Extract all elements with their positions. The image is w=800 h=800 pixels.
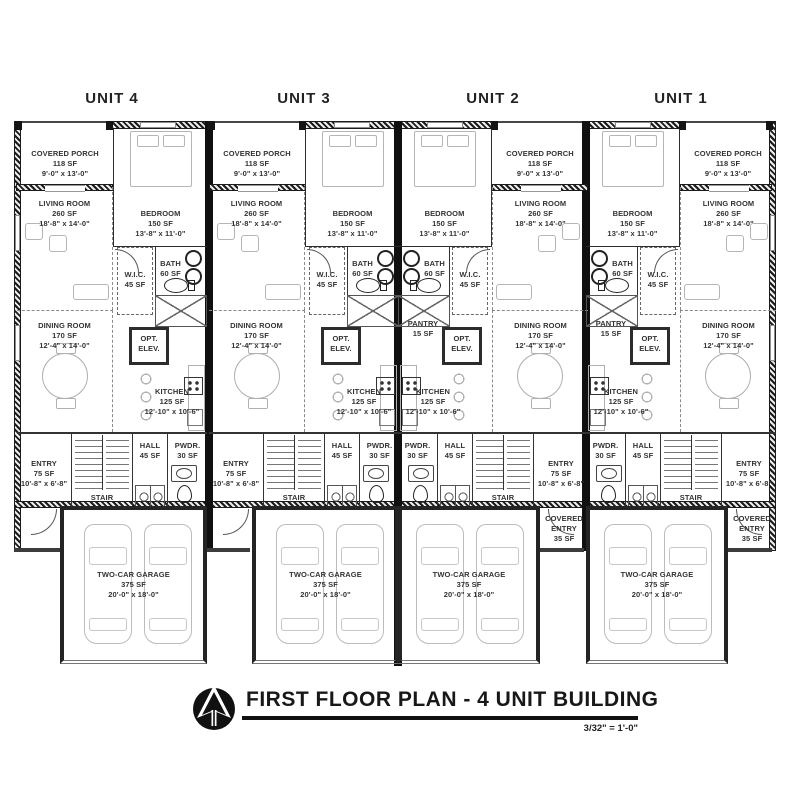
room-area: 45 SF <box>133 451 167 461</box>
room-name: BATH <box>156 259 185 269</box>
room-name: ENTRY <box>209 459 263 469</box>
room-label: STAIR <box>72 493 132 503</box>
room-area: 260 SF <box>493 209 588 219</box>
dining-room: DINING ROOM170 SF12'-4" x 14'-0" <box>17 310 113 432</box>
room-area: 75 SF <box>209 469 263 479</box>
garage-room: TWO-CAR GARAGE375 SF20'-0" x 18'-0" <box>586 506 728 664</box>
covered-porch-room: COVERED PORCH118 SF9'-0" x 13'-0" <box>492 129 588 187</box>
room-area: 150 SF <box>114 219 207 229</box>
room-name: LIVING ROOM <box>209 199 304 209</box>
room-name: PANTRY <box>590 319 632 329</box>
room-area: 15 SF <box>402 329 444 339</box>
room-label: LIVING ROOM260 SF18'-8" x 14'-0" <box>209 199 304 229</box>
room-area: 60 SF <box>420 269 449 279</box>
room-label: ENTRY75 SF10'-8" x 6'-8" <box>722 459 776 489</box>
room-label: DINING ROOM170 SF12'-4" x 14'-0" <box>681 321 776 351</box>
optional-elevator-room: OPT.ELEV. <box>129 327 169 365</box>
room-area: 45 SF <box>641 280 675 290</box>
room-area: 30 SF <box>360 451 399 461</box>
room-area: 118 SF <box>492 159 588 169</box>
powder-room: PWDR.30 SF <box>167 433 207 507</box>
north-arrow-icon <box>190 684 238 732</box>
room-name: COVERED PORCH <box>492 149 588 159</box>
sink-icon <box>171 465 197 482</box>
dining-table-icon <box>705 353 751 399</box>
garage-room: TWO-CAR GARAGE375 SF20'-0" x 18'-0" <box>252 506 399 664</box>
room-name: OPT. <box>324 334 358 344</box>
sofa-icon <box>496 284 532 300</box>
hall-room: HALL45 SF <box>325 433 359 483</box>
stair-room: STAIR <box>71 433 133 507</box>
room-label: KITCHEN125 SF12'-10" x 10'-6" <box>398 387 468 417</box>
toilet-icon <box>164 278 188 293</box>
room-name: ENTRY <box>722 459 776 469</box>
room-label: BEDROOM150 SF13'-8" x 11'-0" <box>114 209 207 239</box>
room-name: PWDR. <box>168 441 207 451</box>
bed-icon <box>414 131 476 187</box>
room-dims: 9'-0" x 13'-0" <box>209 169 305 179</box>
room-label: OPT.ELEV. <box>132 334 166 354</box>
room-dims: 9'-0" x 13'-0" <box>492 169 588 179</box>
room-label: DINING ROOM170 SF12'-4" x 14'-0" <box>209 321 304 351</box>
covered-porch-room: COVERED PORCH118 SF9'-0" x 13'-0" <box>17 129 113 187</box>
room-dims: 20'-0" x 18'-0" <box>590 590 724 600</box>
room-name: BATH <box>420 259 449 269</box>
toilet-icon <box>369 485 384 503</box>
room-name: COVERED PORCH <box>17 149 113 159</box>
room-label: PWDR.30 SF <box>168 441 207 461</box>
bath-room: BATH60 SF <box>347 247 399 295</box>
floor-plan-sheet: UNIT 4 UNIT 3 UNIT 2 UNIT 1 COVERED PORC… <box>0 0 800 800</box>
room-label: KITCHEN125 SF12'-10" x 10'-6" <box>329 387 399 417</box>
room-area: 260 SF <box>17 209 112 219</box>
room-name: TWO-CAR GARAGE <box>256 570 395 580</box>
room-area: 45 SF <box>438 451 472 461</box>
bed-icon <box>602 131 664 187</box>
room-label: BATH60 SF <box>608 259 637 279</box>
room-name: BEDROOM <box>586 209 679 219</box>
room-name: COVERED <box>540 514 588 524</box>
armchair-icon <box>49 235 67 252</box>
unit-3-plan: COVERED PORCH118 SF9'-0" x 13'-0" BEDROO… <box>209 121 399 667</box>
room-name: KITCHEN <box>398 387 468 397</box>
room-name: PWDR. <box>360 441 399 451</box>
entry-room: ENTRY75 SF10'-8" x 6'-8" <box>209 433 263 507</box>
room-name: DINING ROOM <box>17 321 112 331</box>
room-area: 45 SF <box>118 280 152 290</box>
room-name: HALL <box>325 441 359 451</box>
room-area: 170 SF <box>17 331 112 341</box>
sink-icon <box>596 465 622 482</box>
bath-room: BATH60 SF <box>586 247 638 295</box>
room-area: 60 SF <box>608 269 637 279</box>
unit-4-plan: COVERED PORCH118 SF9'-0" x 13'-0" BEDROO… <box>17 121 207 667</box>
room-dims: 20'-0" x 18'-0" <box>402 590 536 600</box>
armchair-icon <box>726 235 744 252</box>
room-name: HALL <box>133 441 167 451</box>
sink-icon <box>377 250 394 267</box>
room-name: DINING ROOM <box>681 321 776 331</box>
washer-dryer-icon <box>135 485 165 507</box>
room-label: PWDR.30 SF <box>398 441 437 461</box>
room-label: TWO-CAR GARAGE375 SF20'-0" x 18'-0" <box>402 570 536 600</box>
room-label: COVERED PORCH118 SF9'-0" x 13'-0" <box>492 149 588 179</box>
room-label: TWO-CAR GARAGE375 SF20'-0" x 18'-0" <box>64 570 203 600</box>
room-label: KITCHEN125 SF12'-10" x 10'-6" <box>137 387 207 417</box>
hall-room: HALL45 SF <box>626 433 660 483</box>
entry-room: ENTRY75 SF10'-8" x 6'-8" <box>722 433 776 507</box>
room-area: 375 SF <box>64 580 203 590</box>
unit-3-title: UNIT 3 <box>259 90 349 108</box>
room-name: OPT. <box>633 334 667 344</box>
room-dims: 13'-8" x 11'-0" <box>114 229 207 239</box>
sink-icon <box>363 465 389 482</box>
room-name: KITCHEN <box>137 387 207 397</box>
room-area: 118 SF <box>680 159 776 169</box>
room-name: LIVING ROOM <box>681 199 776 209</box>
living-room: LIVING ROOM260 SF18'-8" x 14'-0" <box>209 187 305 310</box>
stair-room: STAIR <box>263 433 325 507</box>
room-area: 60 SF <box>156 269 185 279</box>
door-swing-icon <box>31 509 57 535</box>
drawing-title: FIRST FLOOR PLAN - 4 UNIT BUILDING <box>246 688 658 712</box>
stair-treads-icon <box>75 435 129 490</box>
room-dims: 12'-10" x 10'-6" <box>329 407 399 417</box>
dining-room: DINING ROOM170 SF12'-4" x 14'-0" <box>492 310 588 432</box>
shower-icon <box>155 295 207 327</box>
room-label: HALL45 SF <box>626 441 660 461</box>
room-name: ELEV. <box>445 344 479 354</box>
room-dims: 13'-8" x 11'-0" <box>586 229 679 239</box>
room-area: 118 SF <box>17 159 113 169</box>
room-label: ENTRY75 SF10'-8" x 6'-8" <box>17 459 71 489</box>
room-name: COVERED PORCH <box>209 149 305 159</box>
room-area: 45 SF <box>626 451 660 461</box>
garage-room: TWO-CAR GARAGE375 SF20'-0" x 18'-0" <box>398 506 540 664</box>
room-name: ENTRY <box>534 459 588 469</box>
room-name: ENTRY <box>540 524 588 534</box>
room-name: BEDROOM <box>398 209 491 219</box>
room-label: DINING ROOM170 SF12'-4" x 14'-0" <box>493 321 588 351</box>
washer-dryer-icon <box>440 485 470 507</box>
stair-room: STAIR <box>472 433 534 507</box>
sink-icon <box>403 250 420 267</box>
room-dims: 12'-4" x 14'-0" <box>17 341 112 351</box>
powder-room: PWDR.30 SF <box>359 433 399 507</box>
room-dims: 10'-8" x 6'-8" <box>17 479 71 489</box>
toilet-icon <box>417 278 441 293</box>
room-area: 170 SF <box>209 331 304 341</box>
bed-icon <box>130 131 192 187</box>
room-name: HALL <box>626 441 660 451</box>
room-label: LIVING ROOM260 SF18'-8" x 14'-0" <box>681 199 776 229</box>
dining-room: DINING ROOM170 SF12'-4" x 14'-0" <box>209 310 305 432</box>
living-room: LIVING ROOM260 SF18'-8" x 14'-0" <box>680 187 776 310</box>
door-swing-icon <box>223 509 249 535</box>
room-name: HALL <box>438 441 472 451</box>
room-area: 375 SF <box>590 580 724 590</box>
room-area: 118 SF <box>209 159 305 169</box>
room-label: TWO-CAR GARAGE375 SF20'-0" x 18'-0" <box>590 570 724 600</box>
room-label: OPT.ELEV. <box>324 334 358 354</box>
unit-1-plan: COVERED PORCH118 SF9'-0" x 13'-0" BEDROO… <box>586 121 776 667</box>
dining-table-icon <box>234 353 280 399</box>
toilet-icon <box>601 485 616 503</box>
room-area: 170 SF <box>493 331 588 341</box>
kitchen-room: KITCHEN125 SF12'-10" x 10'-6" <box>586 365 656 433</box>
bath-room: BATH60 SF <box>155 247 207 295</box>
stair-treads-icon <box>267 435 321 490</box>
room-area: 30 SF <box>586 451 625 461</box>
unit-1-title: UNIT 1 <box>636 90 726 108</box>
kitchen-room: KITCHEN125 SF12'-10" x 10'-6" <box>329 365 399 433</box>
room-area: 125 SF <box>329 397 399 407</box>
room-area: 125 SF <box>398 397 468 407</box>
room-label: ENTRY75 SF10'-8" x 6'-8" <box>534 459 588 489</box>
living-room: LIVING ROOM260 SF18'-8" x 14'-0" <box>17 187 113 310</box>
room-label: OPT.ELEV. <box>445 334 479 354</box>
room-label: DINING ROOM170 SF12'-4" x 14'-0" <box>17 321 112 351</box>
room-dims: 12'-4" x 14'-0" <box>209 341 304 351</box>
room-name: STAIR <box>72 493 132 503</box>
hall-room: HALL45 SF <box>438 433 472 483</box>
optional-elevator-room: OPT.ELEV. <box>321 327 361 365</box>
room-label: TWO-CAR GARAGE375 SF20'-0" x 18'-0" <box>256 570 395 600</box>
toilet-icon <box>356 278 380 293</box>
room-dims: 10'-8" x 6'-8" <box>722 479 776 489</box>
room-dims: 10'-8" x 6'-8" <box>534 479 588 489</box>
room-dims: 12'-10" x 10'-6" <box>398 407 468 417</box>
room-dims: 12'-10" x 10'-6" <box>586 407 656 417</box>
sofa-icon <box>73 284 109 300</box>
living-room: LIVING ROOM260 SF18'-8" x 14'-0" <box>492 187 588 310</box>
kitchen-room: KITCHEN125 SF12'-10" x 10'-6" <box>398 365 468 433</box>
room-label: COVERED PORCH118 SF9'-0" x 13'-0" <box>17 149 113 179</box>
room-dims: 20'-0" x 18'-0" <box>256 590 395 600</box>
room-label: HALL45 SF <box>325 441 359 461</box>
room-name: ENTRY <box>17 459 71 469</box>
room-dims: 10'-8" x 6'-8" <box>209 479 263 489</box>
pantry-room: PANTRY15 SF <box>402 315 444 343</box>
room-area: 45 SF <box>325 451 359 461</box>
room-label: ENTRY75 SF10'-8" x 6'-8" <box>209 459 263 489</box>
room-name: ELEV. <box>132 344 166 354</box>
room-name: STAIR <box>661 493 721 503</box>
room-dims: 12'-10" x 10'-6" <box>137 407 207 417</box>
sofa-icon <box>684 284 720 300</box>
room-label: HALL45 SF <box>438 441 472 461</box>
room-label: OPT.ELEV. <box>633 334 667 354</box>
room-name: STAIR <box>264 493 324 503</box>
room-area: 35 SF <box>728 534 776 544</box>
room-area: 75 SF <box>17 469 71 479</box>
room-label: STAIR <box>661 493 721 503</box>
powder-room: PWDR.30 SF <box>586 433 626 507</box>
room-name: COVERED <box>728 514 776 524</box>
bedroom-room: BEDROOM150 SF13'-8" x 11'-0" <box>398 129 492 247</box>
unit-4-title: UNIT 4 <box>67 90 157 108</box>
room-name: TWO-CAR GARAGE <box>402 570 536 580</box>
toilet-icon <box>605 278 629 293</box>
stair-room: STAIR <box>660 433 722 507</box>
room-dims: 18'-8" x 14'-0" <box>209 219 304 229</box>
room-name: LIVING ROOM <box>17 199 112 209</box>
sink-icon <box>408 465 434 482</box>
room-area: 15 SF <box>590 329 632 339</box>
room-name: COVERED PORCH <box>680 149 776 159</box>
room-name: PANTRY <box>402 319 444 329</box>
room-name: BEDROOM <box>114 209 207 219</box>
toilet-icon <box>177 485 192 503</box>
title-rule <box>242 716 638 720</box>
room-label: BEDROOM150 SF13'-8" x 11'-0" <box>586 209 679 239</box>
room-area: 45 SF <box>310 280 344 290</box>
room-name: PWDR. <box>586 441 625 451</box>
room-name: TWO-CAR GARAGE <box>64 570 203 580</box>
dining-room: DINING ROOM170 SF12'-4" x 14'-0" <box>680 310 776 432</box>
washer-dryer-icon <box>628 485 658 507</box>
armchair-icon <box>538 235 556 252</box>
washer-dryer-icon <box>327 485 357 507</box>
stair-treads-icon <box>664 435 718 490</box>
drawing-scale: 3/32" = 1'-0" <box>468 723 638 734</box>
room-area: 30 SF <box>168 451 207 461</box>
room-name: KITCHEN <box>329 387 399 397</box>
covered-porch-room: COVERED PORCH118 SF9'-0" x 13'-0" <box>680 129 776 187</box>
unit-2-title: UNIT 2 <box>448 90 538 108</box>
room-area: 30 SF <box>398 451 437 461</box>
bedroom-room: BEDROOM150 SF13'-8" x 11'-0" <box>113 129 207 247</box>
room-dims: 12'-4" x 14'-0" <box>493 341 588 351</box>
room-area: 260 SF <box>209 209 304 219</box>
room-label: BATH60 SF <box>348 259 377 279</box>
room-name: ELEV. <box>633 344 667 354</box>
hall-room: HALL45 SF <box>133 433 167 483</box>
kitchen-room: KITCHEN125 SF12'-10" x 10'-6" <box>137 365 207 433</box>
room-name: TWO-CAR GARAGE <box>590 570 724 580</box>
toilet-icon <box>413 485 428 503</box>
room-name: BEDROOM <box>306 209 399 219</box>
room-name: DINING ROOM <box>493 321 588 331</box>
room-label: COVEREDENTRY35 SF <box>540 514 588 544</box>
room-area: 125 SF <box>586 397 656 407</box>
optional-elevator-room: OPT.ELEV. <box>442 327 482 365</box>
room-label: HALL45 SF <box>133 441 167 461</box>
room-label: COVEREDENTRY35 SF <box>728 514 776 544</box>
room-label: PWDR.30 SF <box>586 441 625 461</box>
sink-icon <box>185 250 202 267</box>
powder-room: PWDR.30 SF <box>398 433 438 507</box>
bedroom-room: BEDROOM150 SF13'-8" x 11'-0" <box>305 129 399 247</box>
room-name: OPT. <box>445 334 479 344</box>
room-area: 45 SF <box>453 280 487 290</box>
room-label: BATH60 SF <box>156 259 185 279</box>
bath-room: BATH60 SF <box>398 247 450 295</box>
sink-icon <box>591 250 608 267</box>
room-area: 375 SF <box>256 580 395 590</box>
bed-icon <box>322 131 384 187</box>
room-label: BATH60 SF <box>420 259 449 279</box>
unit-2-plan: COVERED PORCH118 SF9'-0" x 13'-0" BEDROO… <box>398 121 588 667</box>
room-area: 125 SF <box>137 397 207 407</box>
room-area: 150 SF <box>398 219 491 229</box>
room-name: PWDR. <box>398 441 437 451</box>
room-dims: 18'-8" x 14'-0" <box>681 219 776 229</box>
dining-table-icon <box>517 353 563 399</box>
dining-table-icon <box>42 353 88 399</box>
room-label: KITCHEN125 SF12'-10" x 10'-6" <box>586 387 656 417</box>
room-name: ENTRY <box>728 524 776 534</box>
room-label: PANTRY15 SF <box>590 319 632 339</box>
room-area: 75 SF <box>534 469 588 479</box>
garage-room: TWO-CAR GARAGE375 SF20'-0" x 18'-0" <box>60 506 207 664</box>
room-label: STAIR <box>473 493 533 503</box>
room-name: STAIR <box>473 493 533 503</box>
room-name: OPT. <box>132 334 166 344</box>
room-name: LIVING ROOM <box>493 199 588 209</box>
room-name: BATH <box>608 259 637 269</box>
room-name: BATH <box>348 259 377 269</box>
room-name: ELEV. <box>324 344 358 354</box>
room-label: PWDR.30 SF <box>360 441 399 461</box>
room-label: BEDROOM150 SF13'-8" x 11'-0" <box>398 209 491 239</box>
room-name: KITCHEN <box>586 387 656 397</box>
stair-treads-icon <box>476 435 530 490</box>
room-area: 150 SF <box>586 219 679 229</box>
room-dims: 9'-0" x 13'-0" <box>680 169 776 179</box>
room-dims: 20'-0" x 18'-0" <box>64 590 203 600</box>
room-area: 260 SF <box>681 209 776 219</box>
room-name: DINING ROOM <box>209 321 304 331</box>
covered-entry-room: COVEREDENTRY35 SF <box>728 508 776 558</box>
room-area: 170 SF <box>681 331 776 341</box>
room-label: LIVING ROOM260 SF18'-8" x 14'-0" <box>17 199 112 229</box>
sofa-icon <box>265 284 301 300</box>
entry-room: ENTRY75 SF10'-8" x 6'-8" <box>534 433 588 507</box>
room-label: COVERED PORCH118 SF9'-0" x 13'-0" <box>680 149 776 179</box>
room-area: 60 SF <box>348 269 377 279</box>
room-area: 150 SF <box>306 219 399 229</box>
optional-elevator-room: OPT.ELEV. <box>630 327 670 365</box>
room-label: COVERED PORCH118 SF9'-0" x 13'-0" <box>209 149 305 179</box>
room-dims: 18'-8" x 14'-0" <box>17 219 112 229</box>
room-area: 375 SF <box>402 580 536 590</box>
shower-icon <box>347 295 399 327</box>
entry-room: ENTRY75 SF10'-8" x 6'-8" <box>17 433 71 507</box>
room-label: LIVING ROOM260 SF18'-8" x 14'-0" <box>493 199 588 229</box>
pantry-room: PANTRY15 SF <box>590 315 632 343</box>
room-area: 35 SF <box>540 534 588 544</box>
room-label: STAIR <box>264 493 324 503</box>
covered-porch-room: COVERED PORCH118 SF9'-0" x 13'-0" <box>209 129 305 187</box>
room-area: 75 SF <box>722 469 776 479</box>
covered-entry-room: COVEREDENTRY35 SF <box>540 508 588 558</box>
room-label: BEDROOM150 SF13'-8" x 11'-0" <box>306 209 399 239</box>
room-dims: 13'-8" x 11'-0" <box>398 229 491 239</box>
room-label: PANTRY15 SF <box>402 319 444 339</box>
room-dims: 12'-4" x 14'-0" <box>681 341 776 351</box>
armchair-icon <box>241 235 259 252</box>
room-dims: 18'-8" x 14'-0" <box>493 219 588 229</box>
room-dims: 9'-0" x 13'-0" <box>17 169 113 179</box>
bedroom-room: BEDROOM150 SF13'-8" x 11'-0" <box>586 129 680 247</box>
room-dims: 13'-8" x 11'-0" <box>306 229 399 239</box>
